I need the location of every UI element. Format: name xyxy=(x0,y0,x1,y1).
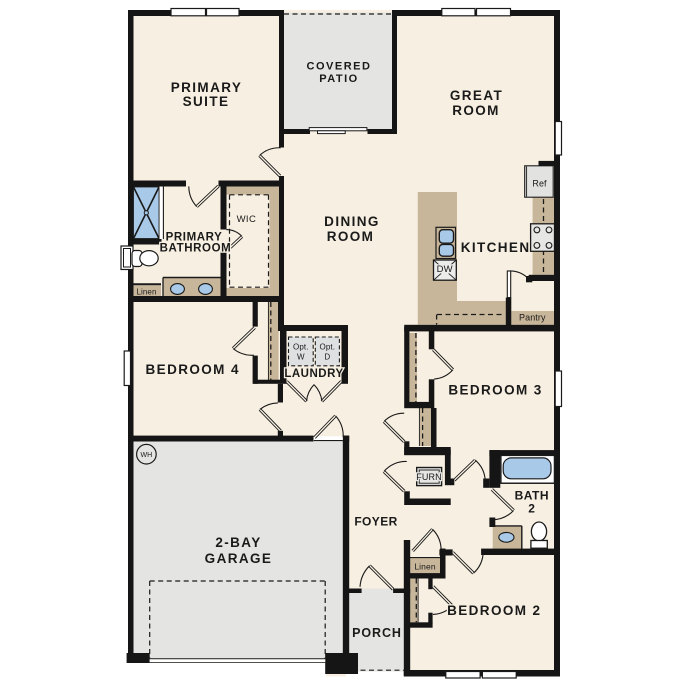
svg-text:2-BAY: 2-BAY xyxy=(215,535,261,550)
svg-text:PORCH: PORCH xyxy=(352,626,402,640)
svg-text:KITCHEN: KITCHEN xyxy=(461,240,531,255)
svg-text:BEDROOM 3: BEDROOM 3 xyxy=(448,382,542,397)
svg-text:DINING: DINING xyxy=(324,214,380,229)
svg-text:2: 2 xyxy=(528,501,535,515)
svg-text:BEDROOM 2: BEDROOM 2 xyxy=(447,603,541,618)
svg-text:PRIMARY: PRIMARY xyxy=(166,231,223,243)
svg-text:GREAT: GREAT xyxy=(450,88,503,103)
svg-text:WH: WH xyxy=(140,452,152,459)
svg-text:WIC: WIC xyxy=(237,214,257,225)
svg-text:COVERED: COVERED xyxy=(307,60,372,72)
svg-text:Linen: Linen xyxy=(136,288,156,297)
svg-text:FURN: FURN xyxy=(416,472,441,482)
svg-text:PATIO: PATIO xyxy=(319,73,358,85)
svg-text:BEDROOM 4: BEDROOM 4 xyxy=(146,362,240,377)
svg-text:SUITE: SUITE xyxy=(183,94,230,109)
svg-text:DW: DW xyxy=(437,264,453,275)
svg-text:FOYER: FOYER xyxy=(354,515,397,529)
svg-text:Ref: Ref xyxy=(532,179,547,189)
svg-text:ROOM: ROOM xyxy=(452,103,500,118)
svg-text:LAUNDRY: LAUNDRY xyxy=(284,368,343,380)
svg-text:ROOM: ROOM xyxy=(327,229,375,244)
svg-text:Opt.: Opt. xyxy=(293,343,309,352)
svg-text:D: D xyxy=(324,353,330,362)
svg-text:BATH: BATH xyxy=(515,488,549,502)
svg-text:GARAGE: GARAGE xyxy=(205,551,273,566)
svg-text:W: W xyxy=(297,353,305,362)
svg-text:PRIMARY: PRIMARY xyxy=(171,80,243,95)
svg-text:Opt.: Opt. xyxy=(320,343,336,352)
svg-text:Linen: Linen xyxy=(414,562,435,572)
svg-text:Pantry: Pantry xyxy=(519,313,546,323)
svg-text:BATHROOM: BATHROOM xyxy=(160,243,232,255)
